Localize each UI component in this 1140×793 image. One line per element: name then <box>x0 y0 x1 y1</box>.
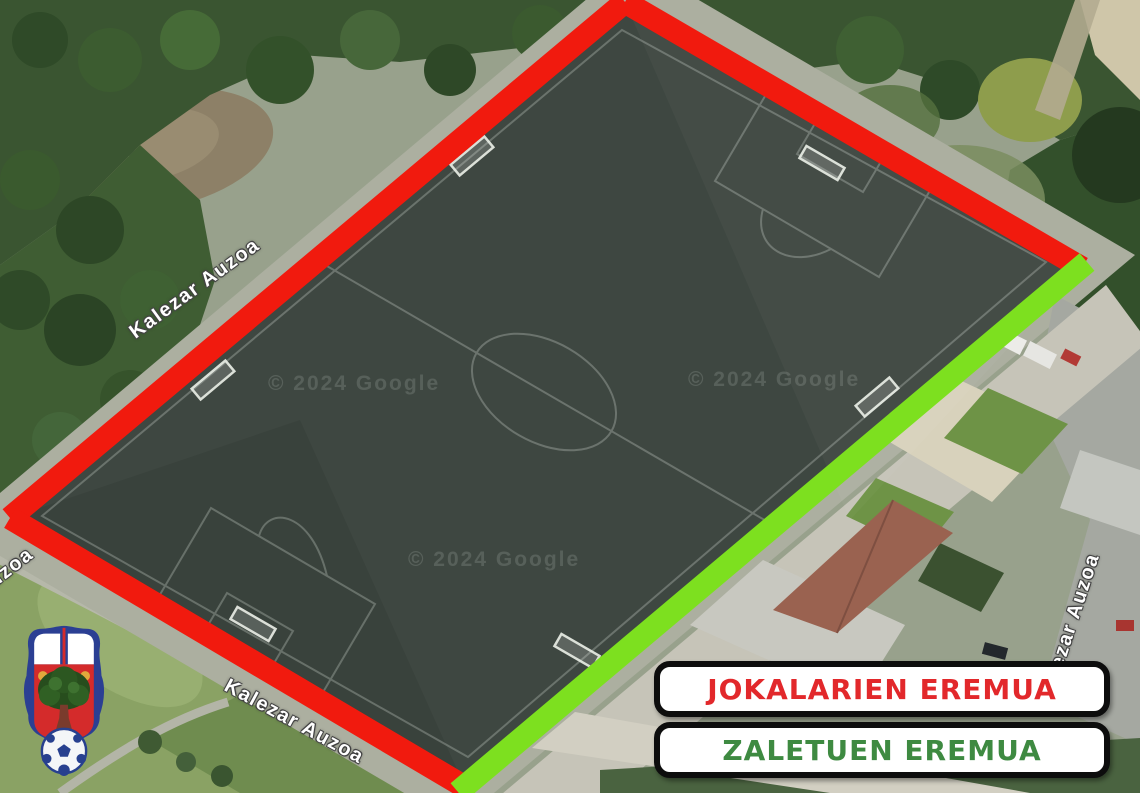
map-canvas: © 2024 Google © 2024 Google © 2024 Googl… <box>0 0 1140 793</box>
players-zone-label: JOKALARIEN EREMUA <box>707 673 1057 706</box>
football-club-crest-icon <box>20 624 108 776</box>
attribution-watermark: © 2024 Google <box>268 372 440 396</box>
legend-item-fans-zone: ZALETUEN EREMUA <box>654 722 1110 778</box>
legend-item-players-zone: JOKALARIEN EREMUA <box>654 661 1110 717</box>
attribution-watermark: © 2024 Google <box>688 368 860 392</box>
parked-car-red <box>1116 620 1134 631</box>
legend: JOKALARIEN EREMUA ZALETUEN EREMUA <box>654 661 1110 783</box>
attribution-watermark: © 2024 Google <box>408 548 580 572</box>
fans-zone-label: ZALETUEN EREMUA <box>722 734 1041 767</box>
